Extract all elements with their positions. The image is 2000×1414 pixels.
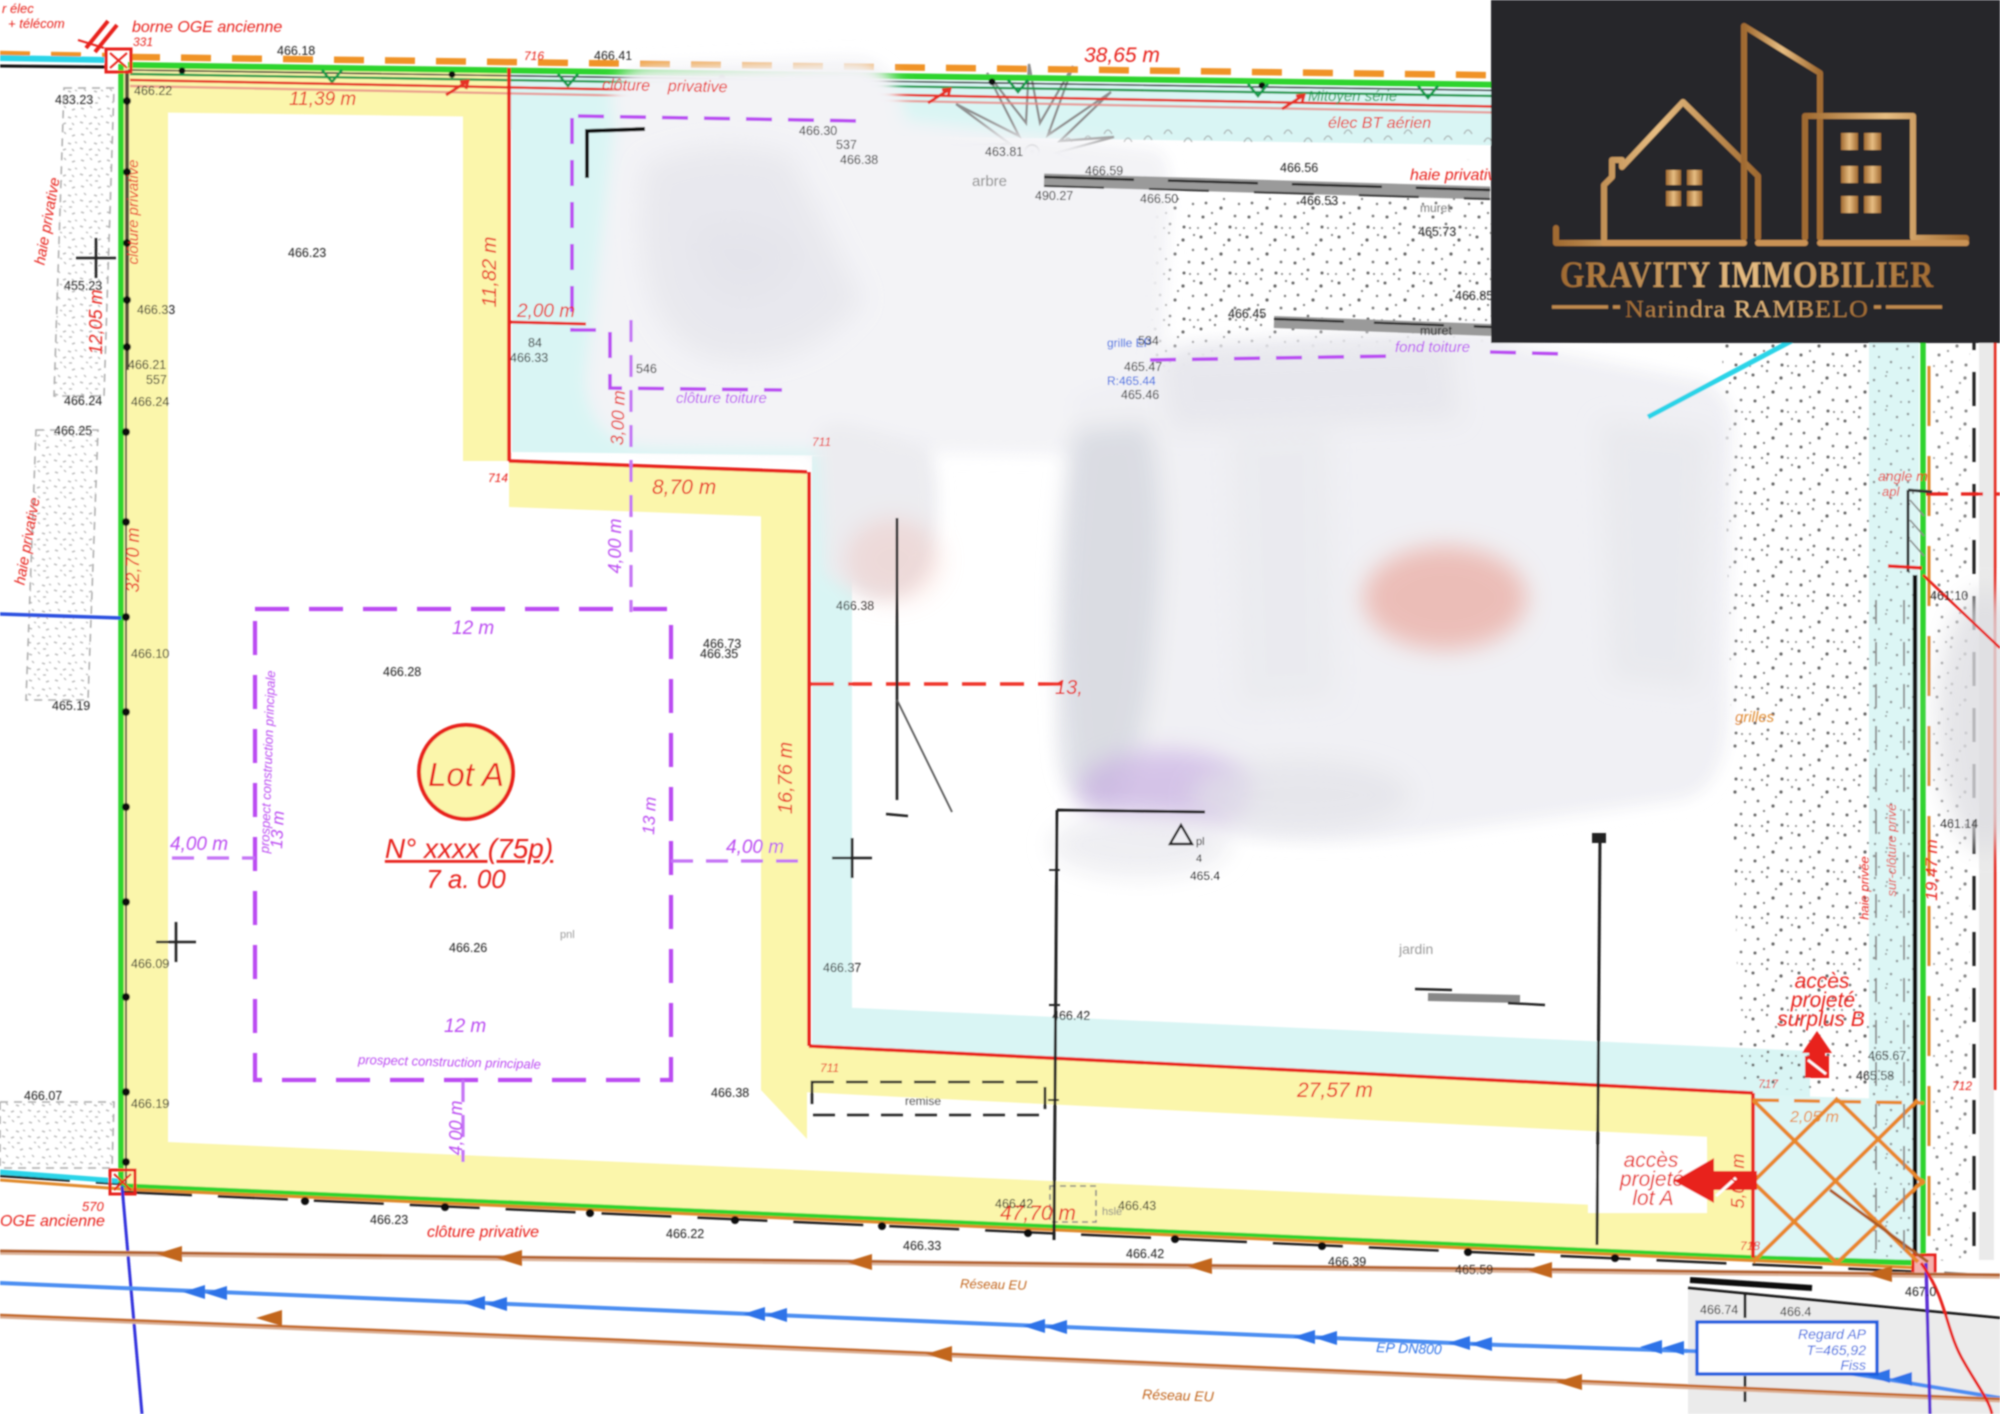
svg-text:465.59: 465.59 xyxy=(1455,1263,1493,1277)
svg-text:465.19: 465.19 xyxy=(52,699,90,713)
svg-text:466.41: 466.41 xyxy=(594,49,632,63)
svg-text:461.14: 461.14 xyxy=(1940,817,1978,831)
svg-text:84: 84 xyxy=(528,336,542,350)
svg-text:466.23: 466.23 xyxy=(288,246,326,260)
svg-text:remise: remise xyxy=(905,1094,941,1108)
svg-text:clôture privative: clôture privative xyxy=(602,77,728,96)
svg-text:455.23: 455.23 xyxy=(64,279,102,293)
svg-text:N° xxxx (75p): N° xxxx (75p) xyxy=(385,833,553,864)
svg-text:466.26: 466.26 xyxy=(449,941,487,955)
svg-text:465.73: 465.73 xyxy=(1418,225,1456,239)
svg-text:466.21: 466.21 xyxy=(128,358,166,372)
svg-text:467.0: 467.0 xyxy=(1905,1285,1936,1299)
svg-text:466.23: 466.23 xyxy=(370,1213,408,1227)
svg-text:Lot A: Lot A xyxy=(428,756,504,793)
svg-text:433.23: 433.23 xyxy=(55,93,93,107)
svg-text:r élec: r élec xyxy=(2,1,34,16)
svg-text:2,05 m: 2,05 m xyxy=(1789,1109,1839,1126)
svg-text:466.07: 466.07 xyxy=(24,1089,62,1103)
svg-text:13,: 13, xyxy=(1055,677,1083,699)
svg-text:466.73: 466.73 xyxy=(703,637,741,651)
svg-text:27,57 m: 27,57 m xyxy=(1296,1079,1373,1102)
svg-text:32,70 m: 32,70 m xyxy=(123,527,143,592)
svg-text:466.18: 466.18 xyxy=(277,44,315,58)
svg-text:8,70 m: 8,70 m xyxy=(652,476,716,499)
svg-text:T=465,92: T=465,92 xyxy=(1806,1342,1866,1358)
svg-text:716: 716 xyxy=(524,49,544,63)
svg-text:16,76 m: 16,76 m xyxy=(775,742,797,814)
svg-text:13 m: 13 m xyxy=(639,796,660,835)
svg-text:466.50: 466.50 xyxy=(1140,192,1178,206)
svg-text:537: 537 xyxy=(836,138,857,152)
svg-text:haie privative: haie privative xyxy=(1410,167,1504,184)
svg-text:465.67: 465.67 xyxy=(1868,1049,1906,1063)
svg-text:clôture privative: clôture privative xyxy=(125,159,142,264)
svg-text:466.85: 466.85 xyxy=(1455,289,1493,303)
svg-text:Mitoyen série: Mitoyen série xyxy=(1308,88,1397,105)
svg-text:11,82 m: 11,82 m xyxy=(479,237,501,308)
svg-text:38,65 m: 38,65 m xyxy=(1084,44,1160,67)
svg-text:surplus B: surplus B xyxy=(1777,1008,1865,1031)
svg-text:466.42: 466.42 xyxy=(995,1197,1033,1211)
svg-text:466.39: 466.39 xyxy=(1328,1255,1366,1269)
svg-text:borne OGE ancienne: borne OGE ancienne xyxy=(132,19,282,36)
svg-text:OGE ancienne: OGE ancienne xyxy=(0,1213,105,1230)
svg-text:clôture toiture: clôture toiture xyxy=(676,390,767,407)
svg-text:grilles: grilles xyxy=(1735,709,1775,726)
svg-text:lot A: lot A xyxy=(1632,1187,1673,1210)
svg-text:Regard AP: Regard AP xyxy=(1798,1326,1867,1342)
svg-text:3,00 m: 3,00 m xyxy=(607,390,629,446)
svg-text:711: 711 xyxy=(820,1061,839,1075)
svg-text:muret: muret xyxy=(1420,324,1452,338)
svg-text:466.42: 466.42 xyxy=(1052,1009,1090,1023)
svg-text:466.22: 466.22 xyxy=(134,84,172,98)
svg-text:Réseau EU: Réseau EU xyxy=(960,1276,1027,1293)
svg-text:élec BT aérien: élec BT aérien xyxy=(1328,115,1431,132)
svg-text:463.81: 463.81 xyxy=(985,145,1023,159)
svg-text:718: 718 xyxy=(1740,1239,1760,1253)
svg-text:haie privée: haie privée xyxy=(1857,856,1872,920)
svg-text:466.53: 466.53 xyxy=(1300,194,1338,208)
svg-text:465.4: 465.4 xyxy=(1190,869,1220,883)
svg-text:19,47 m: 19,47 m xyxy=(1922,839,1941,900)
svg-text:466.30: 466.30 xyxy=(799,124,837,138)
svg-text:4,00 m: 4,00 m xyxy=(726,837,784,858)
svg-text:+ télécom: + télécom xyxy=(8,16,65,31)
svg-text:466.38: 466.38 xyxy=(836,599,874,613)
svg-text:490.27: 490.27 xyxy=(1035,189,1073,203)
svg-text:11,39 m: 11,39 m xyxy=(289,89,356,110)
svg-text:Fiss: Fiss xyxy=(1840,1357,1866,1373)
svg-text:466.43: 466.43 xyxy=(1118,1199,1156,1213)
svg-text:muret: muret xyxy=(1420,201,1451,215)
svg-text:534: 534 xyxy=(1138,334,1159,348)
svg-text:466.74: 466.74 xyxy=(1700,1303,1738,1317)
svg-text:jardin: jardin xyxy=(1398,941,1433,957)
svg-text:466.38: 466.38 xyxy=(840,153,878,167)
svg-text:12,05 m: 12,05 m xyxy=(86,289,106,354)
svg-text:466.10: 466.10 xyxy=(131,647,169,661)
svg-text:GRAVITY IMMOBILIER: GRAVITY IMMOBILIER xyxy=(1560,255,1934,296)
svg-text:466.33: 466.33 xyxy=(137,303,175,317)
svg-text:angle m: angle m xyxy=(1878,468,1928,484)
svg-text:461.10: 461.10 xyxy=(1930,589,1968,603)
svg-text:466.56: 466.56 xyxy=(1280,161,1318,175)
svg-text:714: 714 xyxy=(488,471,508,485)
svg-text:pl: pl xyxy=(1196,836,1205,848)
svg-text:EP DN800: EP DN800 xyxy=(1376,1339,1442,1357)
svg-text:466.19: 466.19 xyxy=(131,1097,169,1111)
svg-text:clôture privative: clôture privative xyxy=(427,1224,539,1241)
svg-text:466.4: 466.4 xyxy=(1780,1305,1811,1319)
svg-text:apl: apl xyxy=(1882,484,1900,499)
svg-text:331: 331 xyxy=(133,35,153,49)
svg-text:466.24: 466.24 xyxy=(64,394,102,408)
svg-text:R:465.44: R:465.44 xyxy=(1107,374,1156,388)
svg-text:Narindra RAMBELO: Narindra RAMBELO xyxy=(1625,297,1869,323)
svg-text:12 m: 12 m xyxy=(444,1016,486,1037)
svg-text:pnl: pnl xyxy=(560,929,575,941)
svg-text:466.33: 466.33 xyxy=(510,351,548,365)
svg-text:5,00 m: 5,00 m xyxy=(1728,1153,1748,1208)
svg-text:7 a. 00: 7 a. 00 xyxy=(426,864,506,894)
svg-text:465.47: 465.47 xyxy=(1124,360,1162,374)
svg-text:4: 4 xyxy=(1196,853,1202,865)
svg-text:fond toiture: fond toiture xyxy=(1395,339,1470,356)
svg-text:Réseau EU: Réseau EU xyxy=(1142,1386,1215,1405)
svg-text:466.37: 466.37 xyxy=(823,961,861,975)
svg-text:arbre: arbre xyxy=(972,173,1007,190)
svg-text:2,00 m: 2,00 m xyxy=(516,301,575,322)
svg-text:4,00 m: 4,00 m xyxy=(446,1100,466,1155)
svg-text:711: 711 xyxy=(812,435,831,449)
svg-text:4,00 m: 4,00 m xyxy=(605,518,625,573)
svg-text:4,00 m: 4,00 m xyxy=(170,834,228,855)
svg-text:717: 717 xyxy=(1758,1077,1779,1091)
svg-text:sur-clôture privé: sur-clôture privé xyxy=(1884,804,1899,897)
svg-text:466.33: 466.33 xyxy=(903,1239,941,1253)
svg-text:465.46: 465.46 xyxy=(1121,388,1159,402)
svg-text:466.22: 466.22 xyxy=(666,1227,704,1241)
svg-text:557: 557 xyxy=(146,373,167,387)
svg-text:466.59: 466.59 xyxy=(1085,164,1123,178)
svg-text:465.58: 465.58 xyxy=(1856,1069,1894,1083)
svg-text:466.45: 466.45 xyxy=(1228,307,1266,321)
svg-text:12 m: 12 m xyxy=(452,618,494,639)
svg-text:466.28: 466.28 xyxy=(383,665,421,679)
svg-text:466.42: 466.42 xyxy=(1126,1247,1164,1261)
svg-text:570: 570 xyxy=(82,1199,104,1214)
svg-text:712: 712 xyxy=(1952,1079,1972,1093)
svg-text:466.25: 466.25 xyxy=(54,424,92,438)
svg-text:546: 546 xyxy=(636,362,657,376)
svg-text:466.24: 466.24 xyxy=(131,395,169,409)
svg-text:466.09: 466.09 xyxy=(131,957,169,971)
svg-text:466.38: 466.38 xyxy=(711,1086,749,1100)
